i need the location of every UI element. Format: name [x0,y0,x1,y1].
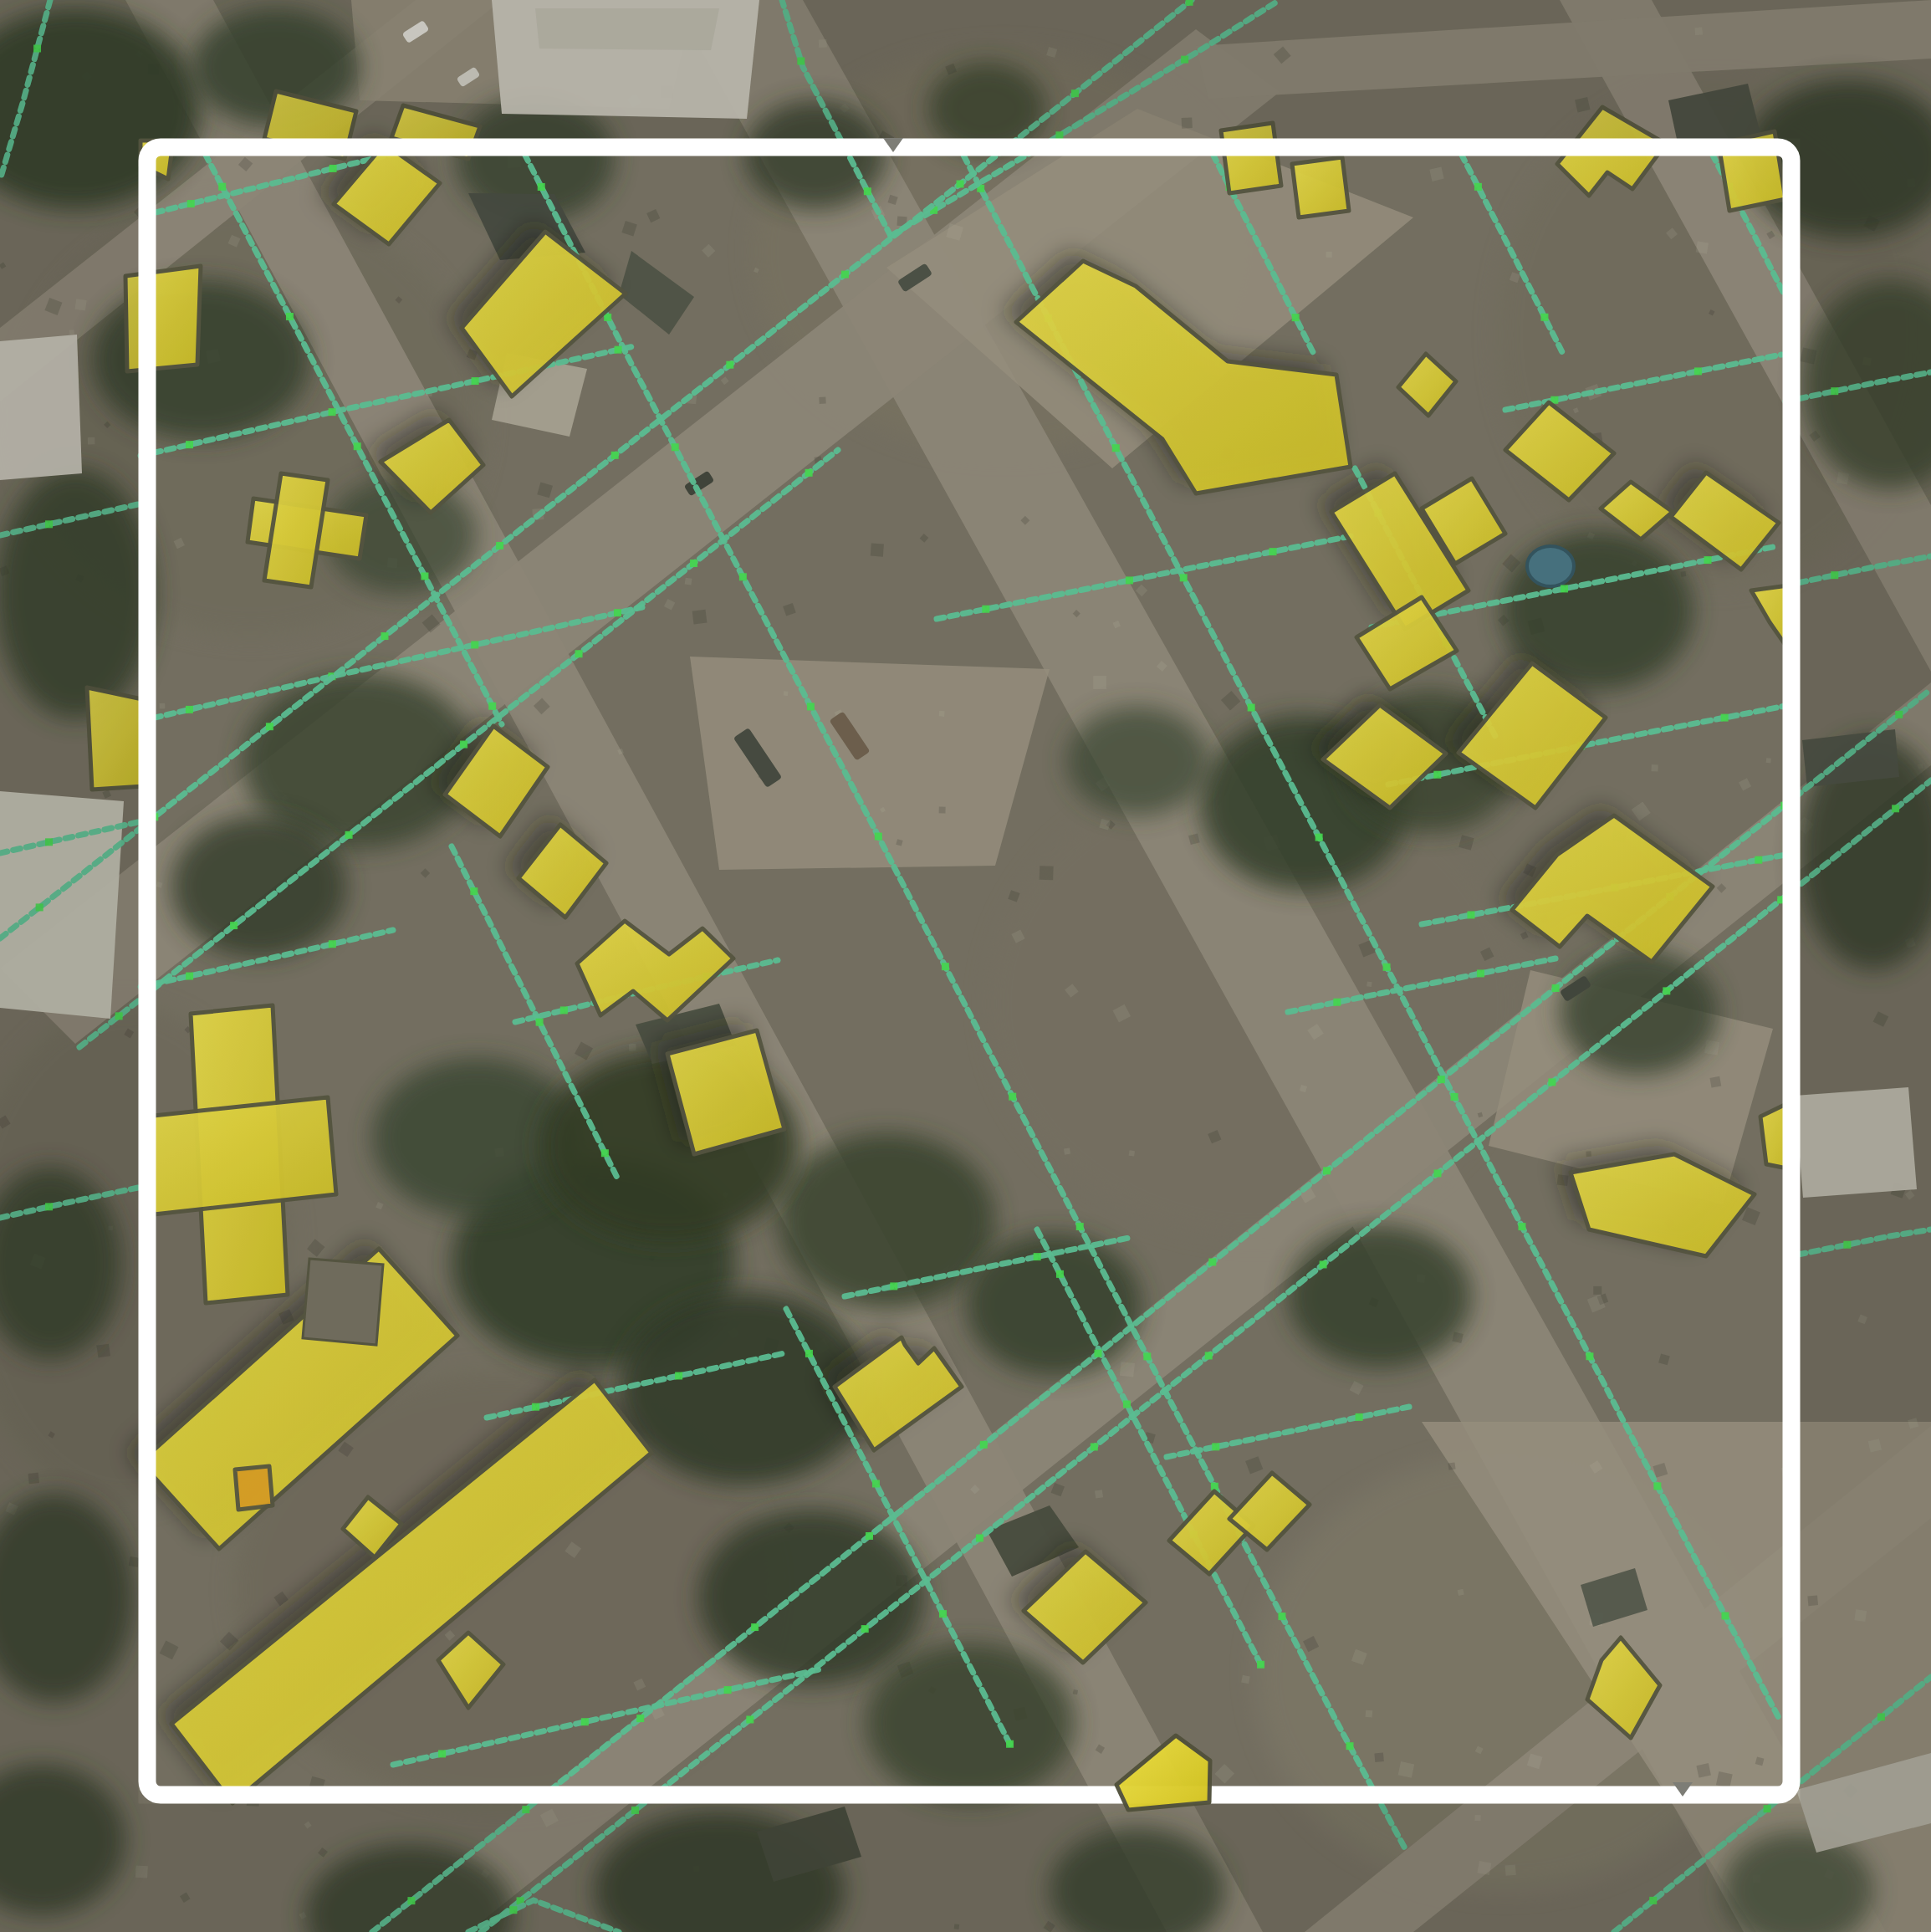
haze-overlay [0,0,1931,1932]
map-canvas [0,0,1931,1932]
aerial-annotation-view [0,0,1931,1932]
